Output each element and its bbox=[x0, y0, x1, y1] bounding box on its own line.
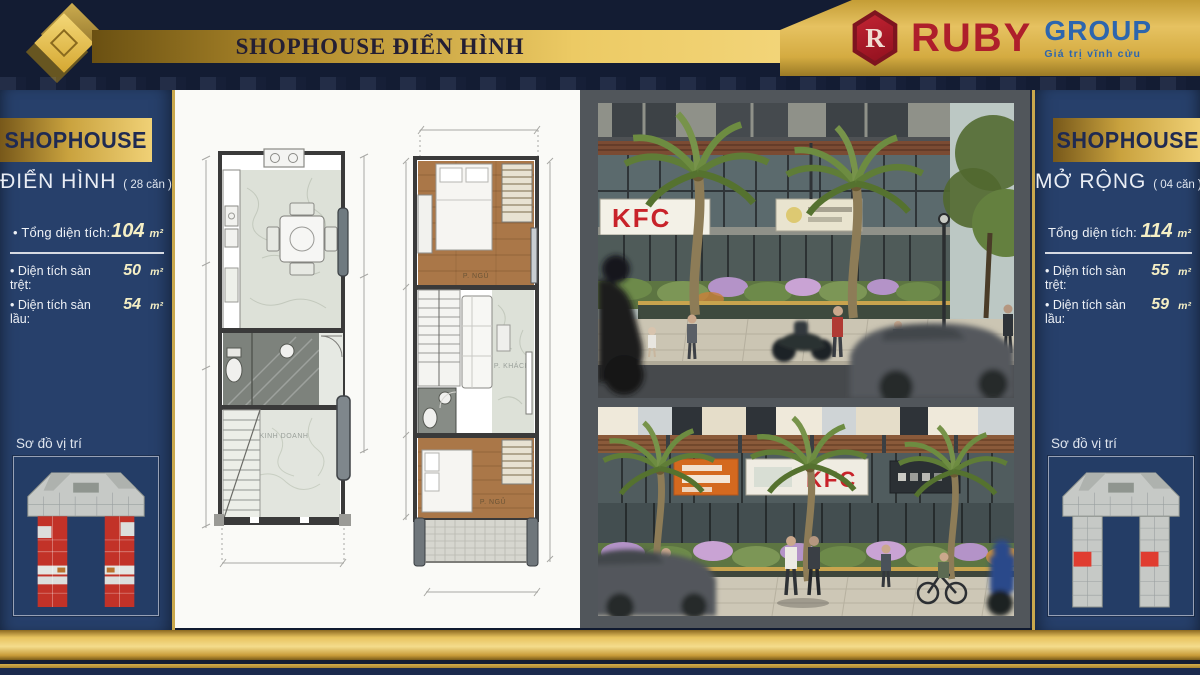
stat-row: Diện tích sàn lầu: 54 m² bbox=[10, 296, 163, 326]
floorplan-upper: P. NGỦ bbox=[398, 100, 568, 620]
right-divider bbox=[1045, 252, 1192, 254]
row-value: 54 bbox=[111, 296, 141, 314]
planter-hedge bbox=[598, 277, 950, 319]
brand-name: RUBY bbox=[911, 18, 1032, 58]
left-banner-label: SHOPHOUSE bbox=[5, 127, 147, 154]
plan2-bedroom2-label: P. NGỦ bbox=[480, 497, 506, 506]
render-street-view-2: KFC bbox=[598, 407, 1014, 616]
ruby-group-logo: R RUBY GROUP Giá trị vĩnh cửu bbox=[849, 10, 1152, 66]
car bbox=[850, 323, 1014, 398]
header: SHOPHOUSE ĐIỂN HÌNH R RUBY GROUP Giá trị… bbox=[0, 0, 1200, 90]
left-total-unit: m² bbox=[150, 228, 163, 240]
plan2-bedroom1-label: P. NGỦ bbox=[463, 271, 489, 280]
row-value: 59 bbox=[1139, 296, 1169, 314]
left-info-panel: SHOPHOUSE ĐIỂN HÌNH ( 28 căn ) Tổng diện… bbox=[0, 90, 175, 630]
row-unit: m² bbox=[141, 266, 163, 278]
ruby-monogram: R bbox=[865, 23, 885, 54]
right-subtitle-note: ( 04 căn ) bbox=[1153, 179, 1200, 191]
right-banner: SHOPHOUSE bbox=[1053, 118, 1200, 162]
plan1-room-label: KINH DOANH bbox=[260, 433, 309, 440]
left-map-label: Sơ đồ vị trí bbox=[16, 436, 82, 451]
left-stat-rows: Diện tích sàn trệt: 50 m² Diện tích sàn … bbox=[10, 262, 163, 330]
page-title: SHOPHOUSE ĐIỂN HÌNH bbox=[236, 34, 525, 60]
right-total-row: Tổng diện tích: 114 m² bbox=[1048, 220, 1191, 243]
left-siteplan bbox=[13, 456, 159, 616]
stat-row: Diện tích sàn trệt: 55 m² bbox=[1045, 262, 1191, 292]
row-unit: m² bbox=[1169, 266, 1191, 278]
siteplan-typical-svg bbox=[14, 457, 158, 615]
watermark-band bbox=[0, 77, 1200, 90]
facade-panels bbox=[598, 407, 1014, 435]
right-total-label: Tổng diện tích: bbox=[1048, 225, 1141, 240]
right-subtitle-main: MỞ RỘNG bbox=[1035, 170, 1146, 193]
shophouse-slide: SHOPHOUSE ĐIỂN HÌNH R RUBY GROUP Giá trị… bbox=[0, 0, 1200, 675]
brand-suffix: GROUP bbox=[1044, 17, 1152, 45]
kfc-sign-text: KFC bbox=[612, 203, 671, 233]
right-total-value: 114 bbox=[1141, 220, 1173, 243]
right-stat-rows: Diện tích sàn trệt: 55 m² Diện tích sàn … bbox=[1045, 262, 1191, 330]
row-unit: m² bbox=[1169, 300, 1191, 312]
row-unit: m² bbox=[141, 300, 163, 312]
right-info-panel: SHOPHOUSE MỞ RỘNG ( 04 căn ) Tổng diện t… bbox=[1032, 90, 1200, 630]
plan2-living-label: P. KHÁCH bbox=[494, 361, 530, 370]
row-label: Diện tích sàn lầu: bbox=[1045, 298, 1139, 326]
title-ribbon: SHOPHOUSE ĐIỂN HÌNH bbox=[92, 30, 780, 63]
floorplan-ground: KINH DOANH bbox=[192, 108, 378, 608]
render-street-view-1: KFC bbox=[598, 103, 1014, 398]
row-label: Diện tích sàn lầu: bbox=[10, 298, 111, 326]
left-subtitle: ĐIỂN HÌNH ( 28 căn ) bbox=[0, 170, 172, 194]
row-value: 55 bbox=[1139, 262, 1169, 280]
left-total-label: Tổng diện tích: bbox=[13, 225, 111, 240]
right-subtitle: MỞ RỘNG ( 04 căn ) bbox=[1035, 170, 1200, 194]
left-banner: SHOPHOUSE bbox=[0, 118, 152, 162]
kfc-sign: KFC bbox=[600, 199, 710, 235]
right-map-label: Sơ đồ vị trí bbox=[1051, 436, 1117, 451]
right-total-unit: m² bbox=[1178, 228, 1191, 240]
row-value: 50 bbox=[111, 262, 141, 280]
left-subtitle-main: ĐIỂN HÌNH bbox=[0, 170, 116, 193]
ruby-gem-icon: R bbox=[849, 10, 901, 66]
row-label: Diện tích sàn trệt: bbox=[10, 264, 111, 292]
footer-navy-strip bbox=[0, 668, 1200, 675]
row-label: Diện tích sàn trệt: bbox=[1045, 264, 1139, 292]
right-siteplan bbox=[1048, 456, 1194, 616]
left-subtitle-note: ( 28 căn ) bbox=[123, 179, 172, 191]
right-banner-label: SHOPHOUSE bbox=[1057, 127, 1199, 154]
left-divider bbox=[10, 252, 164, 254]
left-total-value: 104 bbox=[111, 220, 144, 243]
stat-row: Diện tích sàn lầu: 59 m² bbox=[1045, 296, 1191, 326]
floorplan-area: KINH DOANH bbox=[175, 90, 580, 628]
stat-row: Diện tích sàn trệt: 50 m² bbox=[10, 262, 163, 292]
brand-tagline: Giá trị vĩnh cửu bbox=[1044, 48, 1141, 60]
stairs bbox=[223, 410, 260, 521]
upper-windows bbox=[612, 103, 908, 137]
siteplan-extended-svg bbox=[1049, 457, 1193, 615]
left-total-row: Tổng diện tích: 104 m² bbox=[13, 220, 163, 243]
diamond-logo-icon bbox=[30, 10, 100, 80]
ruby-gem-face: R bbox=[854, 15, 896, 61]
footer-gold-bar bbox=[0, 630, 1200, 660]
render-gallery: KFC bbox=[580, 90, 1032, 628]
